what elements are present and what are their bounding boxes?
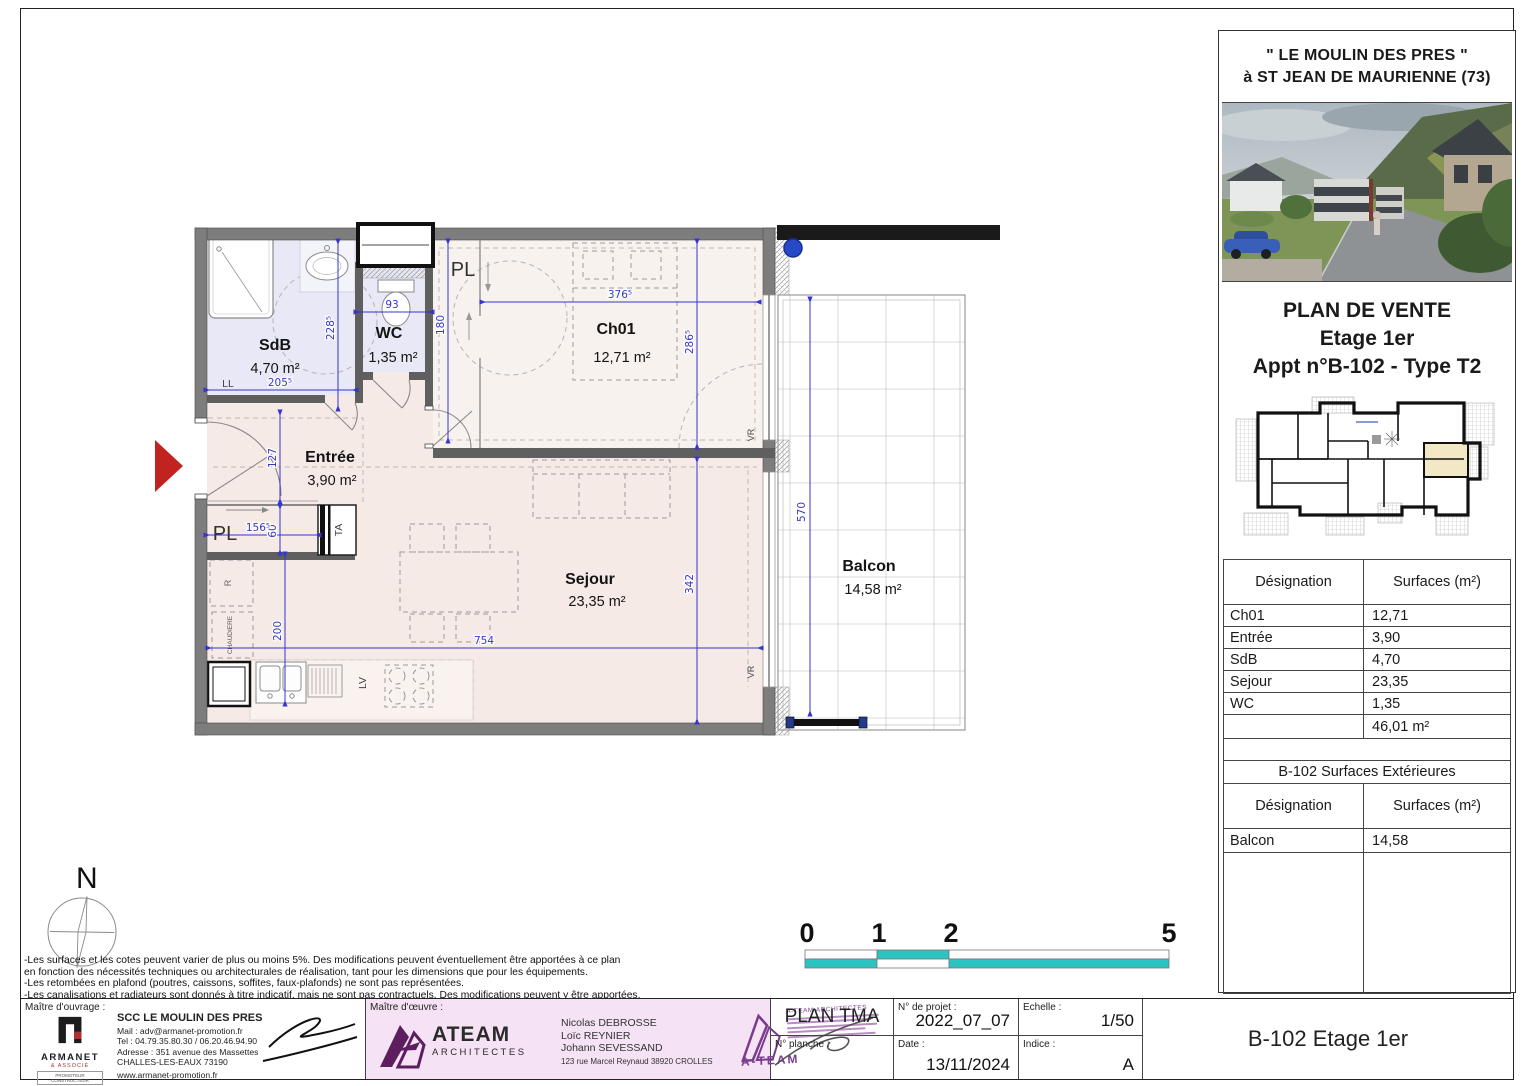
room-sdb-name: SdB: [259, 337, 291, 354]
dim-376: 376⁵: [608, 289, 632, 301]
architect-name: Johann SEVESSAND: [561, 1042, 713, 1055]
label-lv: LV: [357, 677, 369, 689]
label-ll: LL: [222, 378, 234, 390]
project-date-cell: N° de projet : 2022_07_07 Date : 13/11/2…: [894, 999, 1019, 1079]
project-title-line2: à ST JEAN DE MAURIENNE (73): [1219, 69, 1515, 87]
room-fills: [207, 240, 763, 723]
empty-cell: [1364, 853, 1510, 993]
armanet-logo-tag: PROMOTEUR CONSTRUCTEUR: [37, 1071, 103, 1085]
dim-570: 570: [796, 502, 808, 522]
sale-floor: Etage 1er: [1219, 327, 1515, 351]
info-panel: " LE MOULIN DES PRES " à ST JEAN DE MAUR…: [1218, 30, 1516, 993]
dim-93: 93: [385, 299, 398, 311]
floor-plan: 228⁵ 93 180 376⁵ 286⁵ 342 205⁵ 127 60 15…: [147, 222, 1012, 742]
ateam-logo-sub: ARCHITECTES: [432, 1047, 527, 1058]
owner-web: www.armanet-promotion.fr: [117, 1070, 262, 1081]
row-value: 23,35: [1364, 671, 1510, 692]
ateam-logo-text: ATEAM: [432, 1023, 527, 1047]
table-row: Balcon 14,58: [1224, 829, 1510, 853]
room-entree-area: 3,90 m²: [307, 473, 356, 489]
room-sejour-area: 23,35 m²: [568, 594, 625, 610]
owner-mail: Mail : adv@armanet-promotion.fr: [117, 1026, 262, 1037]
dim-342: 342: [684, 574, 696, 594]
architect-name: Nicolas DEBROSSE: [561, 1017, 713, 1030]
project-value: 2022_07_07: [915, 1011, 1010, 1031]
owner-info: SCC LE MOULIN DES PRES Mail : adv@armane…: [117, 1013, 262, 1081]
architect-label: Maître d'œuvre :: [370, 1002, 443, 1013]
plan-notes: -Les surfaces et les cotes peuvent varie…: [24, 955, 784, 1001]
col-designation: Désignation: [1224, 560, 1364, 604]
scale-value: 1/50: [1101, 1011, 1134, 1031]
row-label: WC: [1224, 693, 1364, 714]
balcony-windows: [763, 295, 775, 687]
armanet-logo-sub: & ASSOCIÉ: [37, 1063, 103, 1069]
date-value: 13/11/2024: [926, 1055, 1010, 1075]
col-surfaces: Surfaces (m²): [1364, 784, 1510, 828]
plan-name: PLAN TMA: [785, 1006, 880, 1028]
label-r: R: [223, 579, 233, 586]
surfaces-header-row: Désignation Surfaces (m²): [1224, 560, 1510, 605]
col-designation: Désignation: [1224, 784, 1364, 828]
room-entree-name: Entrée: [305, 449, 355, 466]
scale-label: Echelle :: [1023, 1002, 1061, 1013]
ateam-logo-icon: [376, 1019, 428, 1071]
armanet-logo: ARMANET & ASSOCIÉ PROMOTEUR CONSTRUCTEUR: [37, 1013, 103, 1085]
entrance-arrow-icon: [155, 440, 183, 492]
total-label-empty: [1224, 715, 1364, 738]
label-chaudiere: CHAUDIERE: [227, 615, 234, 654]
room-wc-name: WC: [376, 325, 403, 342]
index-value: A: [1123, 1055, 1134, 1075]
planche-label: N° planche :: [775, 1039, 830, 1050]
row-label: Balcon: [1224, 829, 1364, 852]
empty-cell: [1224, 853, 1364, 993]
row-label: Entrée: [1224, 627, 1364, 648]
row-value: 4,70: [1364, 649, 1510, 670]
table-row: Entrée 3,90: [1224, 627, 1510, 649]
exterior-header-row: Désignation Surfaces (m²): [1224, 784, 1510, 829]
total-value: 46,01 m²: [1364, 715, 1510, 738]
dim-180: 180: [435, 315, 447, 335]
owner-name: SCC LE MOULIN DES PRES: [117, 1013, 262, 1024]
scale-index-cell: Echelle : 1/50 Indice : A: [1019, 999, 1143, 1079]
dim-127: 127: [267, 448, 279, 468]
room-ch01-name: Ch01: [596, 321, 635, 338]
owner-signature: [261, 1009, 361, 1069]
sale-title: PLAN DE VENTE: [1219, 299, 1515, 323]
sheet-title-cell: B-102 Etage 1er: [1143, 999, 1513, 1079]
owner-label: Maître d'ouvrage :: [25, 1002, 105, 1013]
dim-286: 286⁵: [684, 330, 696, 354]
row-label: Sejour: [1224, 671, 1364, 692]
room-ch01-area: 12,71 m²: [593, 350, 650, 366]
total-row: 46,01 m²: [1224, 715, 1510, 739]
label-ta: TA: [333, 524, 345, 537]
index-label: Indice :: [1023, 1039, 1055, 1050]
room-balcon-name: Balcon: [842, 558, 895, 575]
scale-bar: 0 1 2 5: [797, 916, 1182, 974]
scale-1: 1: [871, 918, 886, 948]
title-block: Maître d'ouvrage : ARMANET & ASSOCIÉ PRO…: [20, 998, 1514, 1080]
owner-address: Adresse : 351 avenue des Massettes: [117, 1047, 262, 1058]
table-row: Ch01 12,71: [1224, 605, 1510, 627]
room-sdb-area: 4,70 m²: [250, 361, 299, 377]
project-title-line1: " LE MOULIN DES PRES ": [1219, 47, 1515, 65]
table-row: WC 1,35: [1224, 693, 1510, 715]
row-value: 12,71: [1364, 605, 1510, 626]
label-vr-top: VR: [746, 428, 756, 441]
table-spacer: [1224, 739, 1510, 761]
table-empty-area: [1224, 853, 1510, 993]
date-label: Date :: [898, 1039, 925, 1050]
north-label: N: [76, 862, 98, 895]
architect-address: 123 rue Marcel Reynaud 38920 CROLLES: [561, 1056, 713, 1069]
dim-200: 200: [272, 621, 284, 641]
plan-name-cell: PLAN TMA N° planche :: [771, 999, 894, 1079]
surfaces-table: Désignation Surfaces (m²) Ch01 12,71 Ent…: [1223, 559, 1511, 994]
room-wc-area: 1,35 m²: [368, 350, 417, 366]
table-row: SdB 4,70: [1224, 649, 1510, 671]
sale-apartment: Appt n°B-102 - Type T2: [1219, 355, 1515, 379]
label-pl-bottom: PL: [213, 523, 237, 545]
row-label: SdB: [1224, 649, 1364, 670]
room-balcon-area: 14,58 m²: [844, 582, 901, 598]
owner-tel: Tel : 04.79.35.80.30 / 06.20.46.94.90: [117, 1036, 262, 1047]
label-vr-bottom: VR: [746, 665, 756, 678]
scale-5: 5: [1161, 918, 1176, 948]
col-surfaces: Surfaces (m²): [1364, 560, 1510, 604]
label-pl-top: PL: [451, 259, 475, 281]
armanet-logo-text: ARMANET: [37, 1052, 103, 1063]
dim-754: 754: [474, 635, 494, 647]
dim-156: 156⁵: [246, 522, 270, 534]
key-plan: [1228, 389, 1506, 549]
ateam-logo-text-block: ATEAM ARCHITECTES: [432, 1023, 527, 1058]
project-photo: [1222, 102, 1512, 282]
scale-0: 0: [799, 918, 814, 948]
architect-name: Loïc REYNIER: [561, 1030, 713, 1043]
row-value: 14,58: [1364, 829, 1510, 852]
room-sejour-name: Sejour: [565, 571, 615, 588]
row-value: 3,90: [1364, 627, 1510, 648]
dim-205: 205⁵: [268, 377, 292, 389]
table-row: Sejour 23,35: [1224, 671, 1510, 693]
note-line: -Les retombées en plafond (poutres, cais…: [24, 978, 784, 990]
exterior-section-title: B-102 Surfaces Extérieures: [1224, 761, 1510, 784]
scale-2: 2: [943, 918, 958, 948]
owner-city: CHALLES-LES-EAUX 73190: [117, 1057, 262, 1068]
owner-cell: Maître d'ouvrage : ARMANET & ASSOCIÉ PRO…: [21, 999, 366, 1079]
dim-228: 228⁵: [325, 316, 337, 340]
note-line: en fonction des nécessités techniques ou…: [24, 967, 784, 979]
architect-cell: Maître d'œuvre : ATEAM ARCHITECTES Nicol…: [366, 999, 771, 1079]
wc-window: [358, 224, 433, 266]
sheet-title: B-102 Etage 1er: [1248, 1026, 1408, 1052]
row-label: Ch01: [1224, 605, 1364, 626]
architect-names: Nicolas DEBROSSE Loïc REYNIER Johann SEV…: [561, 1017, 713, 1068]
row-value: 1,35: [1364, 693, 1510, 714]
note-line: -Les surfaces et les cotes peuvent varie…: [24, 955, 784, 967]
